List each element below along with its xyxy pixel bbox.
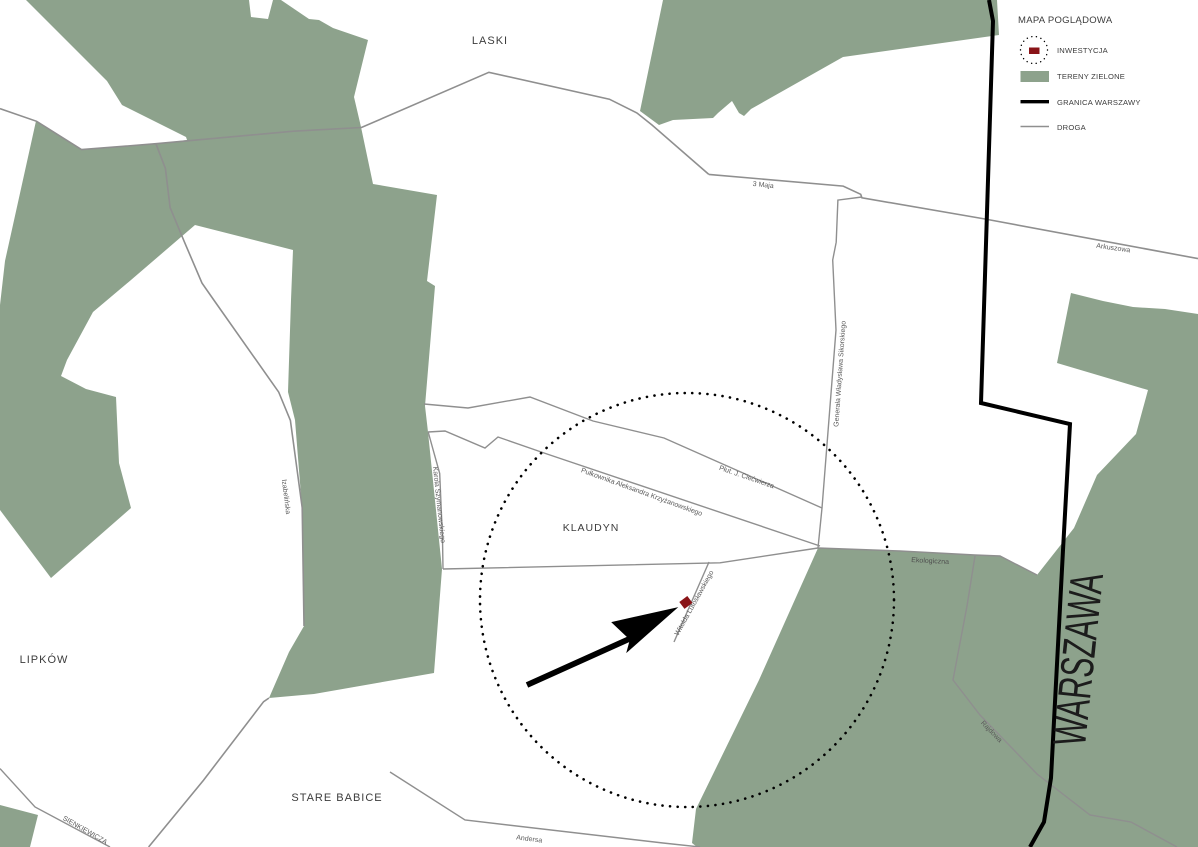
- svg-text:STARE BABICE: STARE BABICE: [291, 792, 382, 804]
- svg-text:LIPKÓW: LIPKÓW: [20, 653, 69, 666]
- svg-text:INWESTYCJA: INWESTYCJA: [1057, 46, 1109, 55]
- svg-text:DROGA: DROGA: [1057, 123, 1087, 132]
- svg-text:TERENY ZIELONE: TERENY ZIELONE: [1057, 72, 1125, 81]
- svg-text:KLAUDYN: KLAUDYN: [563, 522, 620, 534]
- svg-text:GRANICA WARSZAWY: GRANICA WARSZAWY: [1057, 98, 1141, 107]
- svg-text:MAPA POGLĄDOWA: MAPA POGLĄDOWA: [1018, 15, 1113, 26]
- svg-text:LASKI: LASKI: [472, 35, 508, 47]
